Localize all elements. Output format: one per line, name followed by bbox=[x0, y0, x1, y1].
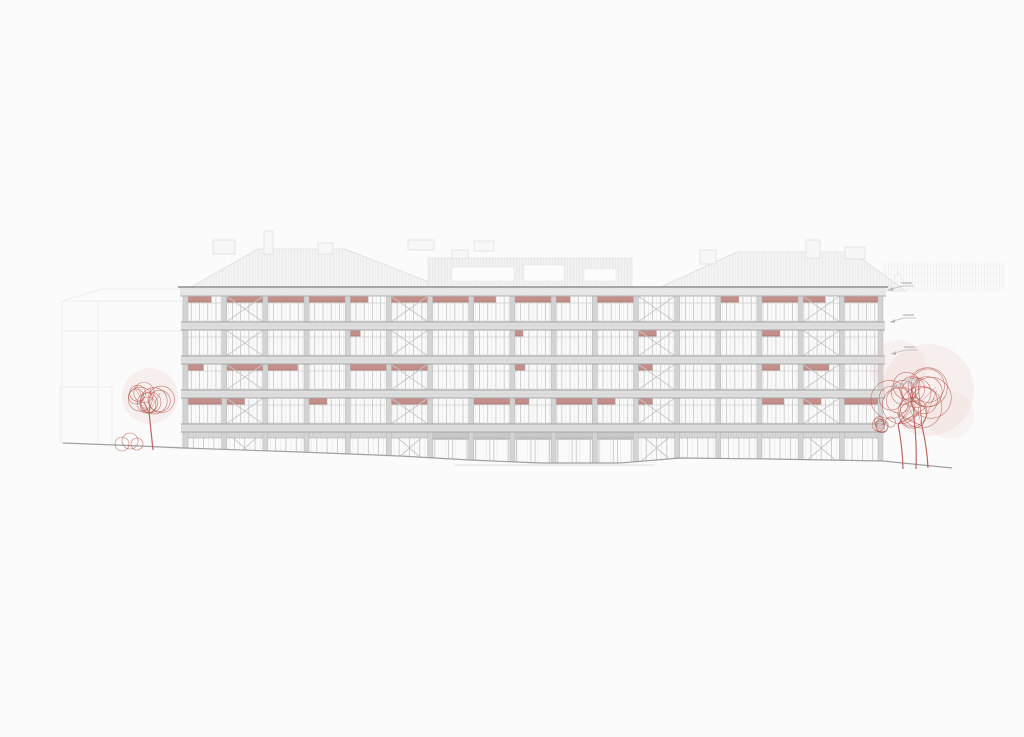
penthouse-window bbox=[584, 269, 616, 281]
blind-strip bbox=[472, 398, 511, 404]
facade-column bbox=[633, 296, 638, 464]
blind-strip bbox=[596, 398, 616, 404]
blind-strip bbox=[266, 364, 297, 370]
blind-strip bbox=[513, 364, 525, 370]
roof-hatch bbox=[184, 249, 452, 291]
blind-strip bbox=[760, 364, 780, 370]
facade-column bbox=[757, 296, 762, 464]
chimney bbox=[264, 231, 273, 254]
main-building-facade bbox=[178, 287, 888, 464]
blind-strip bbox=[513, 398, 529, 404]
chimney bbox=[700, 250, 716, 264]
entrance-canopy-hatch bbox=[430, 432, 636, 440]
chimney bbox=[318, 243, 333, 254]
chimney bbox=[806, 240, 820, 258]
level-marker-label bbox=[904, 346, 915, 348]
roof-hatch bbox=[652, 252, 906, 291]
facade-column bbox=[183, 296, 188, 464]
level-marker-label bbox=[905, 379, 916, 381]
facade-column bbox=[716, 296, 721, 464]
facade-column bbox=[304, 296, 309, 464]
blind-strip bbox=[555, 296, 571, 302]
facade-column bbox=[469, 296, 474, 464]
facade-column bbox=[675, 296, 680, 464]
blind-strip bbox=[802, 364, 829, 370]
blind-strip bbox=[843, 398, 882, 404]
blind-strip bbox=[760, 330, 780, 336]
blind-strip bbox=[513, 296, 552, 302]
blind-strip bbox=[308, 296, 347, 302]
blind-strip bbox=[349, 330, 361, 336]
blind-strip bbox=[802, 296, 826, 302]
elevation-canvas bbox=[0, 0, 1024, 737]
facade-column bbox=[345, 296, 350, 464]
facade-column bbox=[222, 296, 227, 464]
level-marker-arrow bbox=[890, 319, 895, 323]
level-marker-label bbox=[901, 282, 912, 284]
blind-strip bbox=[266, 296, 305, 302]
blind-strip bbox=[843, 296, 882, 302]
blind-strip bbox=[349, 364, 388, 370]
blind-strip bbox=[555, 398, 594, 404]
facade-column bbox=[798, 296, 803, 464]
blind-strip bbox=[760, 398, 784, 404]
facade-column bbox=[428, 296, 433, 464]
blind-strip bbox=[431, 296, 470, 302]
chimney bbox=[474, 241, 494, 251]
blind-strip bbox=[472, 296, 496, 302]
blind-strip bbox=[596, 296, 635, 302]
blind-strip bbox=[308, 398, 328, 404]
background-building-line bbox=[62, 289, 102, 301]
blind-strip bbox=[760, 296, 799, 302]
facade-column bbox=[551, 296, 556, 464]
facade-column bbox=[592, 296, 597, 464]
background-building-outline bbox=[60, 387, 112, 445]
blind-strip bbox=[349, 296, 369, 302]
facade-column bbox=[839, 296, 844, 464]
chimney bbox=[408, 240, 434, 250]
blind-strip bbox=[719, 296, 739, 302]
facade-column bbox=[510, 296, 515, 464]
penthouse-window bbox=[524, 265, 564, 281]
parapet-hatch bbox=[180, 287, 886, 296]
architectural-elevation-drawing bbox=[0, 0, 1024, 737]
facade-column bbox=[386, 296, 391, 464]
penthouse-window bbox=[452, 267, 514, 281]
canopy-wash bbox=[870, 340, 926, 396]
chimney bbox=[213, 240, 235, 254]
blind-strip bbox=[184, 398, 223, 404]
facade-column bbox=[263, 296, 268, 464]
chimney bbox=[845, 247, 865, 259]
chimney bbox=[452, 250, 468, 259]
level-marker-label bbox=[903, 314, 914, 316]
